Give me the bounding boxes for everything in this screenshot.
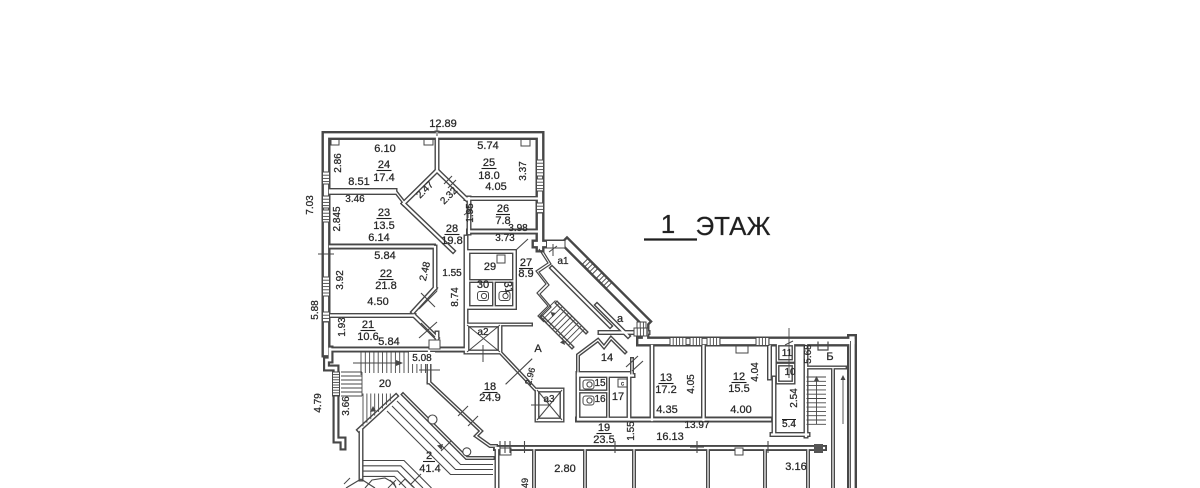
svg-text:22: 22 xyxy=(380,268,392,280)
svg-text:2.80: 2.80 xyxy=(554,463,575,475)
svg-text:41.4: 41.4 xyxy=(419,463,440,475)
svg-text:20: 20 xyxy=(379,378,391,390)
svg-text:24.9: 24.9 xyxy=(479,392,500,404)
svg-text:2.86: 2.86 xyxy=(333,153,344,173)
svg-text:29: 29 xyxy=(484,261,496,273)
svg-text:15: 15 xyxy=(594,378,606,389)
svg-text:2: 2 xyxy=(426,450,432,462)
svg-text:25: 25 xyxy=(483,157,495,169)
svg-text:Б: Б xyxy=(826,351,833,363)
svg-text:а1: а1 xyxy=(557,256,569,267)
svg-text:15.5: 15.5 xyxy=(728,383,749,395)
svg-text:А: А xyxy=(534,343,542,355)
svg-text:1.93: 1.93 xyxy=(337,317,348,337)
svg-text:5.84: 5.84 xyxy=(374,250,395,262)
svg-text:4.79: 4.79 xyxy=(313,393,324,413)
svg-text:8.74: 8.74 xyxy=(450,287,461,307)
svg-text:21: 21 xyxy=(362,319,374,331)
svg-text:12: 12 xyxy=(733,371,745,383)
svg-text:10.6: 10.6 xyxy=(357,331,378,343)
svg-text:3.73: 3.73 xyxy=(495,233,515,244)
svg-text:4.05: 4.05 xyxy=(686,374,697,394)
svg-text:4.50: 4.50 xyxy=(367,296,388,308)
svg-text:31: 31 xyxy=(501,280,515,294)
svg-text:5.08: 5.08 xyxy=(412,353,432,364)
svg-text:16.13: 16.13 xyxy=(656,431,684,443)
svg-text:14: 14 xyxy=(601,352,613,364)
svg-text:16: 16 xyxy=(594,394,606,405)
svg-text:2.845: 2.845 xyxy=(332,206,343,231)
svg-text:1.95: 1.95 xyxy=(465,203,476,223)
svg-text:c: c xyxy=(621,382,624,388)
svg-text:13.5: 13.5 xyxy=(373,220,394,232)
svg-text:5.88: 5.88 xyxy=(310,300,321,320)
svg-text:21.8: 21.8 xyxy=(375,280,396,292)
svg-text:2.54: 2.54 xyxy=(789,388,800,408)
svg-text:3.46: 3.46 xyxy=(345,194,365,205)
svg-text:3.16: 3.16 xyxy=(785,461,806,473)
svg-text:6.14: 6.14 xyxy=(368,232,389,244)
svg-text:11: 11 xyxy=(782,348,793,359)
svg-text:28: 28 xyxy=(446,223,458,235)
svg-text:8.51: 8.51 xyxy=(348,176,369,188)
svg-text:5.68: 5.68 xyxy=(803,344,814,364)
svg-text:17.4: 17.4 xyxy=(373,172,394,184)
svg-text:а2: а2 xyxy=(477,327,489,338)
svg-text:23.5: 23.5 xyxy=(593,434,614,446)
svg-text:5.74: 5.74 xyxy=(477,140,498,152)
svg-text:8.9: 8.9 xyxy=(518,268,533,280)
svg-text:1: 1 xyxy=(661,209,675,239)
svg-text:6.10: 6.10 xyxy=(374,143,395,155)
svg-text:1.55: 1.55 xyxy=(626,421,637,441)
svg-text:4.00: 4.00 xyxy=(730,404,751,416)
svg-text:1.55: 1.55 xyxy=(442,268,462,279)
svg-text:4.35: 4.35 xyxy=(656,404,677,416)
svg-text:ЭТАЖ: ЭТАЖ xyxy=(695,211,770,241)
svg-text:19.8: 19.8 xyxy=(441,235,462,247)
svg-text:49: 49 xyxy=(520,478,530,488)
svg-text:23: 23 xyxy=(378,207,390,219)
svg-text:а: а xyxy=(617,313,624,325)
svg-text:4.04: 4.04 xyxy=(750,362,761,382)
svg-text:13: 13 xyxy=(660,372,672,384)
svg-text:13.97: 13.97 xyxy=(684,420,709,431)
svg-text:4.05: 4.05 xyxy=(485,181,506,193)
svg-text:19: 19 xyxy=(598,422,610,434)
svg-text:3.66: 3.66 xyxy=(341,396,352,416)
svg-text:12.89: 12.89 xyxy=(429,118,457,130)
svg-text:30: 30 xyxy=(477,279,489,291)
svg-text:26: 26 xyxy=(497,203,509,215)
svg-text:10: 10 xyxy=(784,367,796,378)
svg-text:3.37: 3.37 xyxy=(518,161,529,181)
svg-text:17.2: 17.2 xyxy=(655,384,676,396)
svg-text:а3: а3 xyxy=(543,394,555,405)
svg-text:3.92: 3.92 xyxy=(335,270,346,290)
svg-text:5.84: 5.84 xyxy=(378,336,399,348)
svg-text:5.4: 5.4 xyxy=(782,419,796,430)
svg-text:24: 24 xyxy=(378,159,390,171)
svg-text:7.03: 7.03 xyxy=(305,195,316,215)
svg-text:17: 17 xyxy=(612,391,624,403)
